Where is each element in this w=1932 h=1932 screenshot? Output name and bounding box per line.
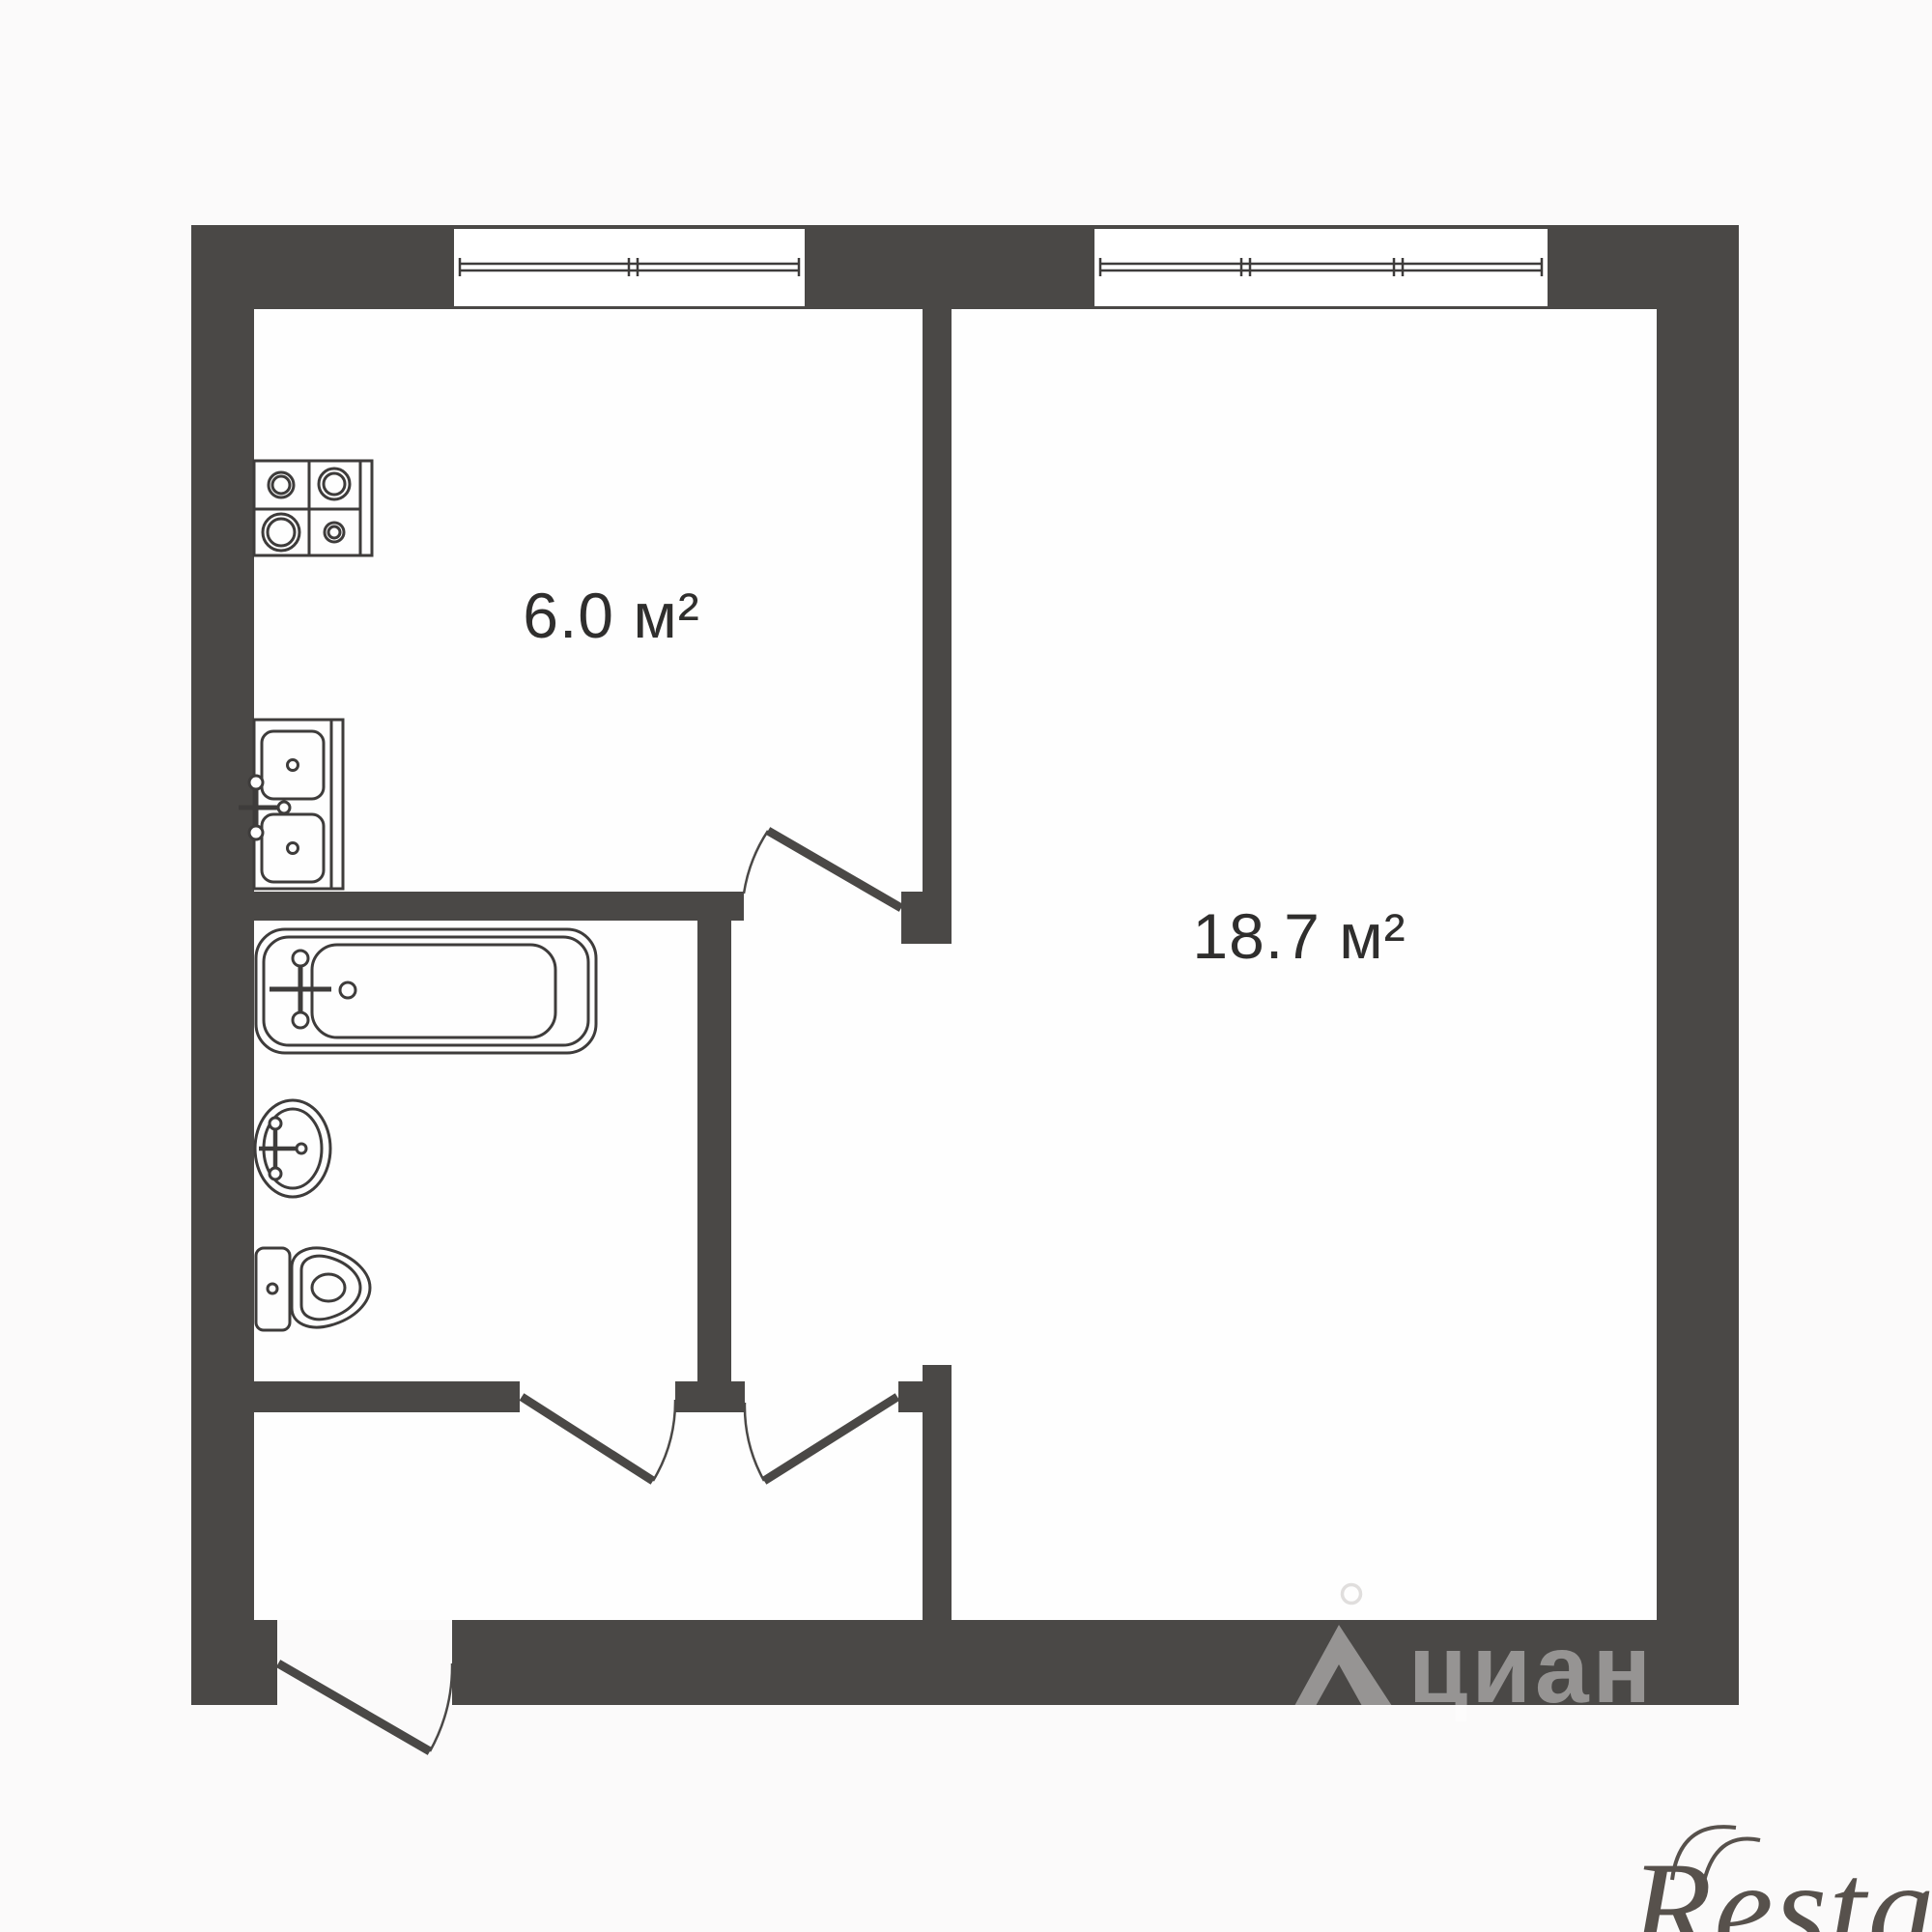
wall-bath-bottom (254, 1381, 520, 1412)
floor-plan-svg: etagi (0, 0, 1932, 1932)
watermark-restate: Restate (1630, 1827, 1932, 1932)
living-room-area-label: 18.7 м² (1192, 900, 1406, 972)
cian-logo-text: циан (1408, 1615, 1655, 1723)
wall-divider-stub (901, 892, 923, 944)
restate-logo-text: Restate (1630, 1834, 1932, 1932)
wall-left-foot (191, 1620, 277, 1705)
wall-bath-right (697, 921, 731, 1412)
kitchen-area-label: 6.0 м² (523, 580, 699, 651)
wall-kitchen-bath (254, 892, 744, 921)
living-room-window (1094, 229, 1548, 306)
wall-living-lower (923, 1365, 952, 1620)
wall-divider-upper (923, 307, 952, 944)
wall-right (1657, 225, 1739, 1705)
wall-hall-stub (898, 1381, 923, 1412)
floor-areas (254, 306, 1657, 1620)
wall-bath-right-foot (675, 1381, 745, 1412)
wall-left (191, 225, 254, 1620)
floor-plan-page: etagi (0, 0, 1932, 1932)
